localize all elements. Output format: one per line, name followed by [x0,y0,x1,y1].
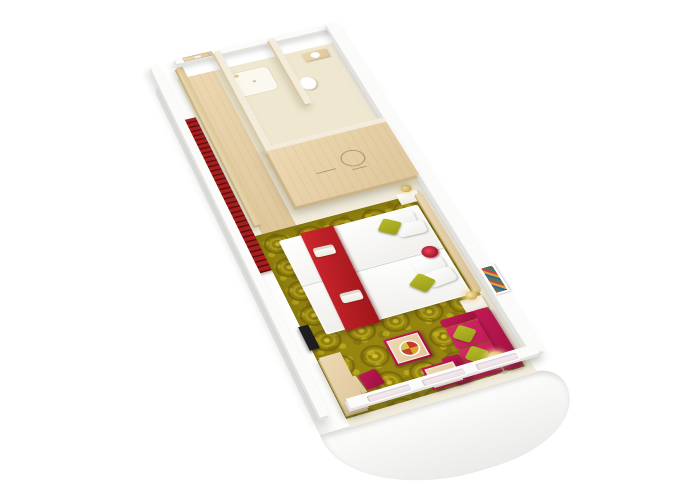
wardrobe-sketch-line [316,168,336,174]
door-safety-sheet [194,55,201,59]
washbasin [309,51,321,58]
floorplan-scene [0,0,680,486]
shower-drain [252,80,256,83]
door-handle [208,53,211,55]
cabin-plan-3d [151,40,586,486]
